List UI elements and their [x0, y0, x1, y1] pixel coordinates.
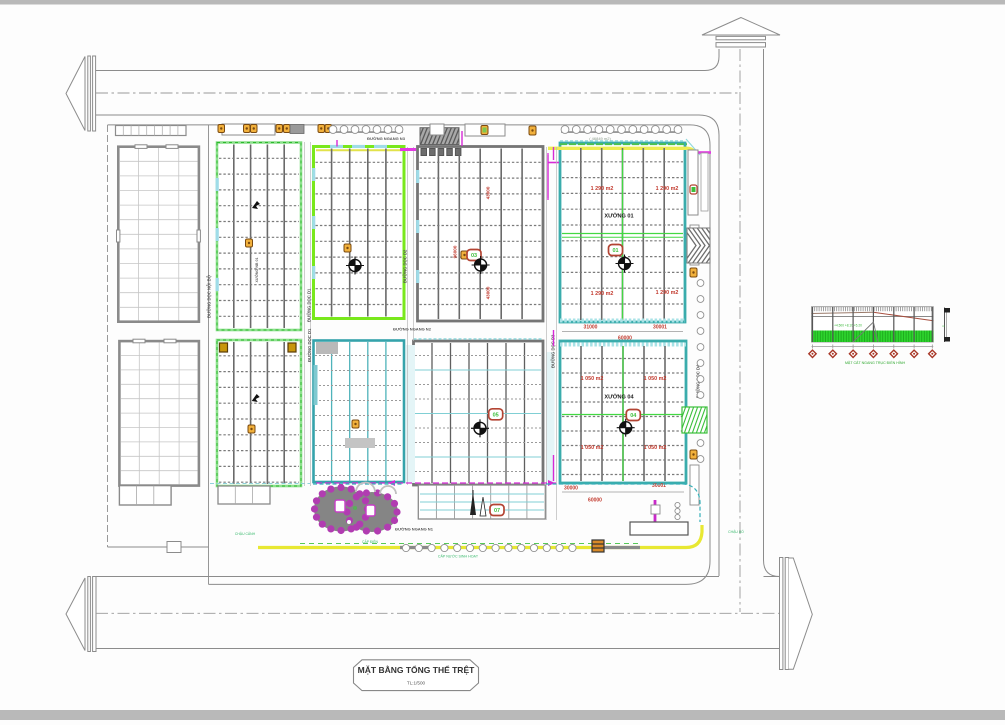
svg-text:ĐƯỜNG NGANG N2: ĐƯỜNG NGANG N2: [393, 327, 432, 332]
svg-text:ĐƯỜNG DỌC NỘI BỘ: ĐƯỜNG DỌC NỘI BỘ: [207, 274, 212, 318]
svg-text:43000: 43000: [486, 286, 491, 299]
svg-text:1 050 m2: 1 050 m2: [581, 376, 604, 382]
svg-text:1 290 m2: 1 290 m2: [591, 291, 614, 297]
svg-text:ĐƯỜNG DỌC D1: ĐƯỜNG DỌC D1: [307, 288, 312, 322]
svg-text:CẤP NƯỚC SINH HOẠT: CẤP NƯỚC SINH HOẠT: [438, 554, 479, 559]
svg-text:1 050 m2: 1 050 m2: [644, 445, 667, 451]
svg-text:07: 07: [494, 508, 500, 514]
svg-text:1 290 m2: 1 290 m2: [656, 186, 679, 192]
svg-text:30000: 30000: [564, 486, 578, 492]
svg-text:31000: 31000: [584, 325, 598, 331]
svg-text:03: 03: [471, 253, 477, 259]
svg-text:60000: 60000: [588, 498, 602, 504]
svg-text:CHẬU UỐ: CHẬU UỐ: [728, 529, 744, 534]
svg-text:43000: 43000: [486, 186, 491, 199]
svg-text:05: 05: [493, 412, 499, 418]
svg-text:CHẬU CẢNH: CHẬU CẢNH: [235, 531, 256, 536]
svg-text:CẤP ĐIỆN: CẤP ĐIỆN: [362, 539, 379, 544]
svg-text:+4.500 +8.10 +5.20: +4.500 +8.10 +5.20: [834, 324, 862, 328]
svg-text:01: 01: [612, 248, 618, 254]
svg-text:1 290 m2: 1 290 m2: [656, 290, 679, 296]
svg-text:ĐƯỜNG NGANG N3: ĐƯỜNG NGANG N3: [367, 136, 406, 141]
svg-text:30001: 30001: [653, 325, 667, 331]
svg-text:( 46849 m2): ( 46849 m2): [589, 136, 611, 141]
svg-text:04: 04: [630, 413, 637, 419]
svg-text:TL:1/500: TL:1/500: [407, 681, 426, 686]
svg-text:1 050 m2: 1 050 m2: [644, 376, 667, 382]
svg-text:MẶT BẰNG TỔNG THỂ TRỆT: MẶT BẰNG TỔNG THỂ TRỆT: [358, 664, 475, 675]
svg-text:ĐƯỜNG DỌC D2: ĐƯỜNG DỌC D2: [403, 249, 408, 283]
svg-text:XƯỞNG 04: XƯỞNG 04: [604, 394, 634, 401]
svg-text:96000: 96000: [453, 245, 458, 258]
svg-text:MẶT CẮT NGANG TRỤC ĐIỂN HÌNH: MẶT CẮT NGANG TRỤC ĐIỂN HÌNH: [845, 360, 906, 365]
svg-text:XƯỞNG NB 01: XƯỞNG NB 01: [254, 257, 259, 282]
svg-text:1 290 m2: 1 290 m2: [591, 186, 614, 192]
svg-text:ĐƯỜNG NGANG N1: ĐƯỜNG NGANG N1: [395, 527, 434, 532]
svg-text:XƯỞNG 01: XƯỞNG 01: [604, 213, 633, 220]
svg-text:1 050 m2: 1 050 m2: [581, 445, 604, 451]
svg-text:ĐƯỜNG DỌC D1: ĐƯỜNG DỌC D1: [307, 328, 312, 362]
